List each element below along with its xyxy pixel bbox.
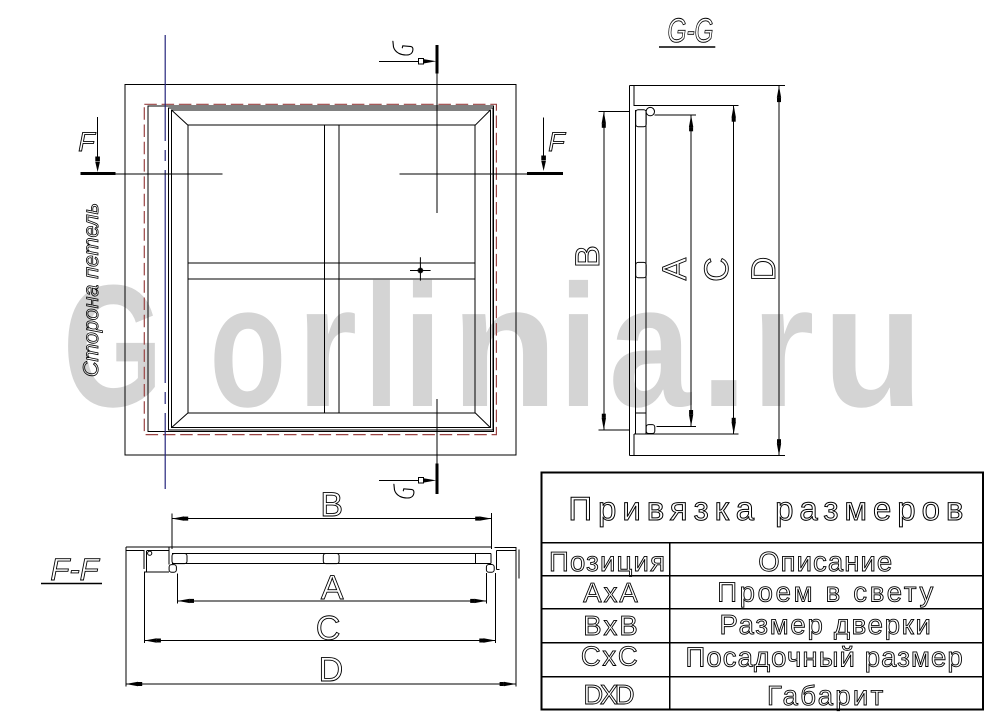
svg-text:СхС: СхС bbox=[581, 641, 638, 672]
svg-text:B: B bbox=[569, 245, 607, 268]
svg-text:C: C bbox=[316, 610, 341, 648]
svg-text:i: i bbox=[559, 248, 598, 443]
svg-text:C: C bbox=[698, 257, 736, 282]
svg-text:АхА: АхА bbox=[583, 577, 638, 608]
svg-text:Габарит: Габарит bbox=[767, 680, 884, 711]
svg-text:r: r bbox=[296, 248, 357, 443]
svg-text:F-F: F-F bbox=[50, 552, 100, 587]
svg-text:D: D bbox=[745, 257, 783, 282]
svg-text:Сторона петель: Сторона петель bbox=[79, 203, 103, 377]
svg-text:ВхВ: ВхВ bbox=[583, 610, 638, 641]
svg-text:Размер дверки: Размер дверки bbox=[720, 609, 931, 640]
svg-text:D: D bbox=[319, 651, 344, 689]
svg-text:u: u bbox=[823, 248, 924, 443]
svg-text:Описание: Описание bbox=[758, 546, 892, 577]
svg-text:i: i bbox=[403, 248, 442, 443]
svg-text:A: A bbox=[321, 569, 344, 607]
svg-text:F: F bbox=[548, 127, 566, 157]
svg-text:Посадочный размер: Посадочный размер bbox=[685, 642, 962, 673]
svg-text:B: B bbox=[320, 486, 343, 524]
svg-text:Привязка размеров: Привязка размеров bbox=[568, 490, 963, 527]
svg-text:DXD: DXD bbox=[583, 679, 634, 710]
svg-text:n: n bbox=[451, 248, 558, 443]
svg-text:G-G: G-G bbox=[668, 12, 714, 50]
svg-text:Проем в свету: Проем в свету bbox=[717, 577, 933, 608]
svg-text:Позиция: Позиция bbox=[549, 546, 665, 577]
svg-text:F: F bbox=[78, 127, 96, 157]
svg-text:A: A bbox=[656, 257, 694, 280]
svg-text:l: l bbox=[364, 248, 398, 443]
svg-text:o: o bbox=[209, 248, 286, 443]
